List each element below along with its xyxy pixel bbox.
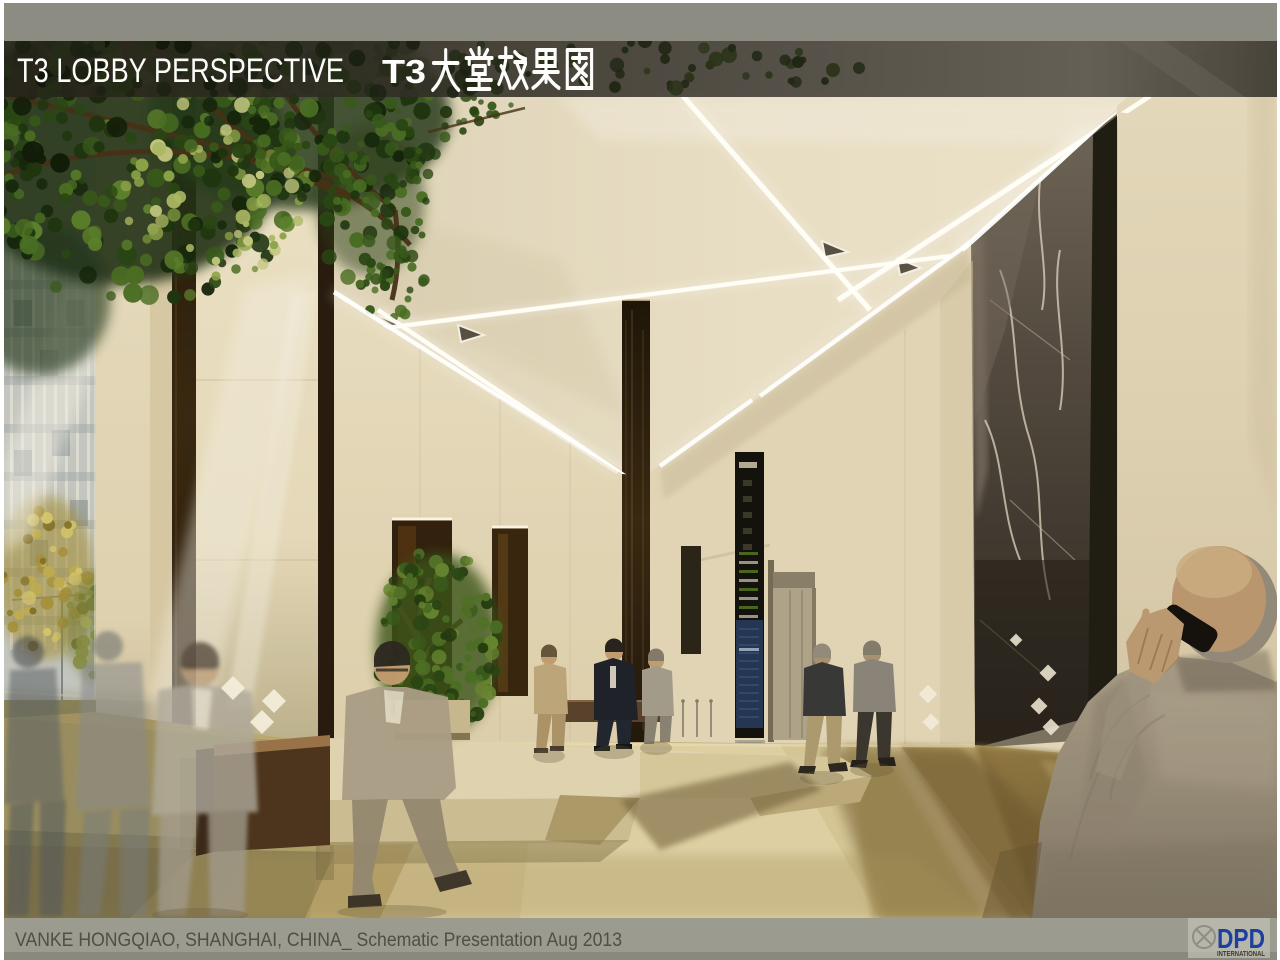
svg-text:INTERNATIONAL: INTERNATIONAL [1217, 951, 1266, 958]
svg-text:T3: T3 [382, 53, 426, 90]
svg-text:T3 LOBBY PERSPECTIVE: T3 LOBBY PERSPECTIVE [17, 52, 344, 90]
svg-text:VANKE HONGQIAO, SHANGHAI, CHIN: VANKE HONGQIAO, SHANGHAI, CHINA_ Schemat… [15, 929, 622, 951]
svg-text:DPD: DPD [1217, 923, 1265, 954]
